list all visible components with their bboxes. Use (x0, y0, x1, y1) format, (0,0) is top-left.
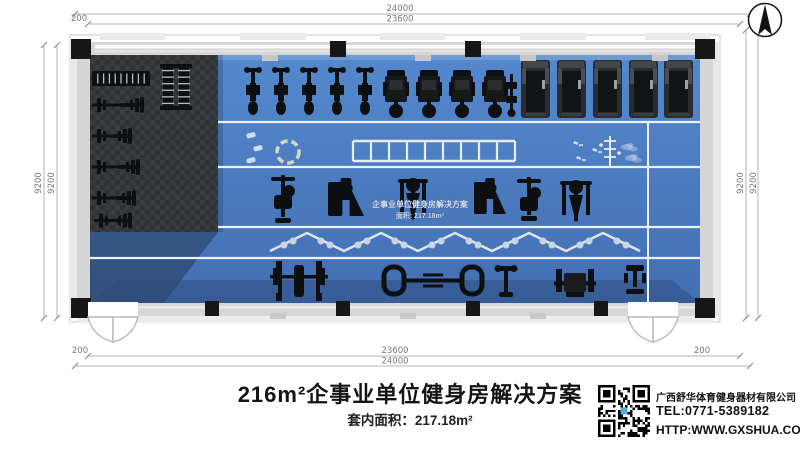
qr-code-icon (598, 385, 650, 437)
zigzag-dot (586, 238, 593, 245)
dim-right-inner: 9200 (736, 172, 746, 194)
treadmill-icon (521, 60, 550, 118)
zigzag-dot (281, 242, 288, 249)
rack-h-icon (92, 71, 150, 86)
zigzag-dot (475, 242, 482, 249)
column (330, 41, 346, 57)
zigzag-dot (327, 242, 334, 249)
door-leaf (628, 317, 653, 342)
dim-top-outer: 24000 (386, 4, 413, 14)
column (466, 301, 480, 316)
dim-right-outer: 9200 (749, 172, 759, 194)
zigzag-dot (623, 242, 630, 249)
window-strip (95, 45, 695, 49)
zone-edge-shadow (218, 55, 223, 232)
wall-right (700, 42, 713, 316)
plan-watermark-line2: 面积: 217.18m² (396, 211, 445, 220)
treadmill-icon (557, 60, 586, 118)
canopy-segment (380, 33, 446, 40)
zigzag-dot (549, 242, 556, 249)
corner-column (71, 39, 91, 59)
zigzag-dot (355, 242, 362, 249)
column (336, 301, 350, 316)
plan-watermark-line1: 企事业单位健身房解决方案 (371, 199, 469, 209)
dim-top-inner: 23600 (386, 15, 413, 25)
canopy-segment (240, 33, 306, 40)
canopy-segment (100, 33, 166, 40)
wall-left (77, 42, 90, 316)
dim-left-inner: 9200 (47, 172, 57, 194)
zigzag-dot (577, 242, 584, 249)
column-tab (530, 313, 546, 319)
zigzag-dot (503, 242, 510, 249)
zigzag-dot (614, 238, 621, 245)
corner-column (695, 298, 715, 318)
door-leaf (88, 317, 113, 342)
dim-offset-bottom-right: 200 (694, 346, 710, 356)
zigzag-dot (392, 238, 399, 245)
exterior-left (69, 42, 78, 316)
treadmill-icon (593, 60, 622, 118)
gym-floorplan-page: 企事业单位健身房解决方案 面积: 217.18m² 24000 23600 20… (0, 0, 800, 450)
zigzag-dot (364, 238, 371, 245)
column-tab (652, 55, 668, 61)
column-tab (270, 313, 286, 319)
wall-bottom-line (90, 306, 700, 309)
wall-highlight (218, 55, 700, 60)
exterior-right (712, 42, 721, 316)
door-leaf (113, 317, 138, 342)
company-name: 广西舒华体育健身器材有限公司 (656, 389, 796, 404)
dim-left-outer: 9200 (34, 172, 44, 194)
column (465, 41, 481, 57)
zigzag-dot (512, 238, 519, 245)
window-strip-2 (95, 50, 695, 52)
column-tab (415, 55, 431, 61)
dim-bottom-inner: 23600 (381, 346, 408, 356)
zigzag-dot (318, 238, 325, 245)
company-phone: TEL:0771-5389182 (656, 404, 769, 418)
exterior-bottom (77, 316, 713, 323)
zigzag-dot (540, 238, 547, 245)
qr-center-logo (620, 407, 627, 414)
wall-bottom (77, 303, 713, 316)
canopy-segment (520, 33, 586, 40)
door-leaf (653, 317, 678, 342)
column (205, 301, 219, 316)
zigzag-dot (401, 242, 408, 249)
dim-offset-bottom-left: 200 (72, 346, 88, 356)
zigzag-dot (466, 238, 473, 245)
tower2-icon (624, 265, 646, 294)
company-website: HTTP:WWW.GXSHUA.COM (656, 423, 800, 437)
canopy-segment (645, 33, 711, 40)
column (594, 301, 608, 316)
zigzag-dot (438, 238, 445, 245)
zigzag-dot (290, 238, 297, 245)
power-rack-icon (270, 261, 328, 301)
corner-column (695, 39, 715, 59)
column-tab (262, 55, 278, 61)
column-tab (400, 313, 416, 319)
treadmill-icon (629, 60, 658, 118)
zigzag-dot (429, 242, 436, 249)
north-compass-icon (749, 4, 782, 37)
door-gap (628, 302, 678, 317)
dim-bottom-outer: 24000 (381, 357, 408, 367)
treadmill-icon (664, 60, 693, 118)
door-gap (88, 302, 138, 317)
dim-offset-top-left: 200 (71, 14, 87, 24)
column-tab (520, 55, 536, 61)
